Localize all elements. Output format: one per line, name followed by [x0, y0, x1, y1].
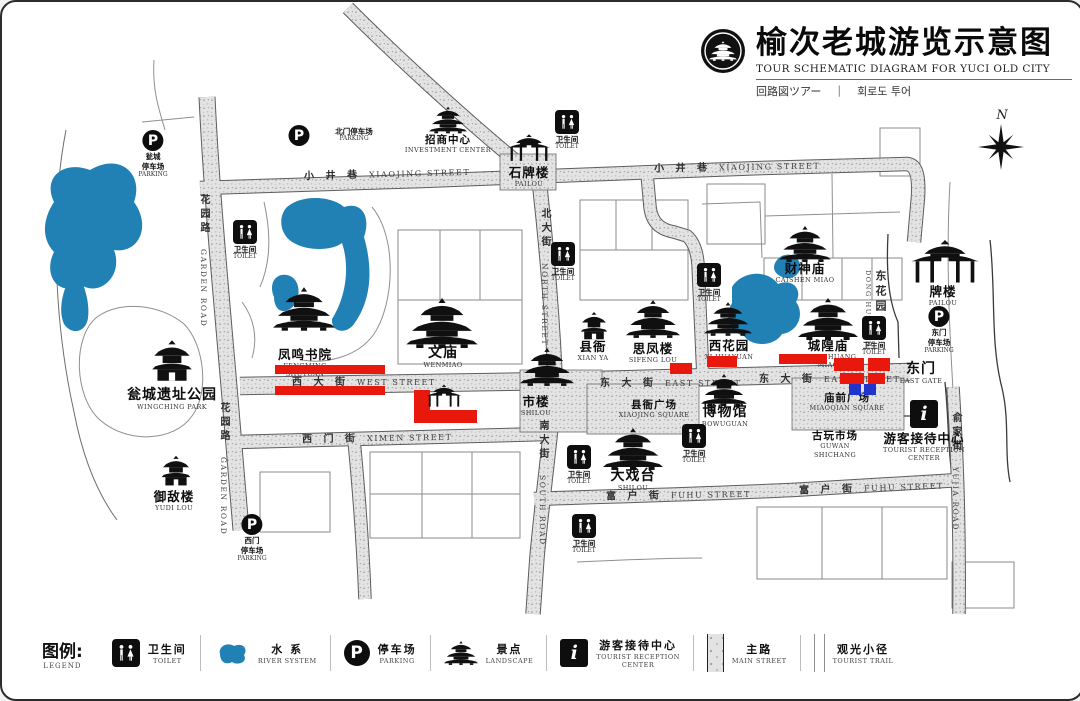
tour-map-canvas: 榆次老城游览示意图 TOUR SCHEMATIC DIAGRAM FOR YUC… [0, 0, 1080, 701]
site-label-wenmiao: 文庙 WENMIAO [423, 346, 462, 370]
legend-heading: 图例: LEGEND [42, 637, 83, 670]
street-label-yujia: 俞家街 YUJIA ROAD [946, 412, 965, 531]
toilet-badge-6: 卫生间TOILET [682, 424, 706, 465]
legend-item-parking: P 停车场 PARKING [331, 640, 430, 666]
xihuayuan-pavilion-icon [704, 300, 752, 338]
parking-icon: P [344, 640, 370, 666]
west-street-archway-icon [425, 382, 463, 410]
street-label-garden-south: 花园路 GARDEN ROAD [214, 402, 233, 535]
parking-ximen: P 西门 停车场 PARKING [237, 514, 266, 563]
main-street-swatch-icon [707, 634, 724, 672]
toilet-icon [233, 220, 257, 244]
site-label-chenghuangmiao: 城隍庙 CHENGHUANG MIAO [800, 339, 857, 369]
shilou-tower-icon [520, 336, 574, 398]
toilet-badge-5: 卫生间TOILET [862, 316, 886, 357]
site-label-reception: 游客接待中心 TOURIST RECEPTION CENTER [883, 432, 965, 462]
landscape-temple-icon [444, 640, 478, 666]
parking-icon: P [928, 306, 949, 327]
tourist-reception-badge: i [910, 400, 938, 428]
site-label-investment: 招商中心 INVESTMENT CENTER [405, 135, 491, 155]
daxitai-stage-icon [602, 428, 664, 470]
legend-item-reception: i 游客接待中心 TOURIST RECEPTION CENTER [547, 637, 693, 670]
chenghuangmiao-temple-icon [798, 298, 858, 340]
title-seal-icon [700, 28, 746, 74]
site-label-xianya-square: 县衙广场 XIAOJING SQUARE [619, 400, 690, 420]
title-divider: | [837, 84, 841, 97]
parking-icon: P [241, 514, 262, 535]
wingching-gate-icon [146, 338, 198, 384]
site-label-sifenglou: 思凤楼 SIFENG LOU [629, 342, 677, 364]
toilet-badge-7: 卫生间TOILET [567, 445, 591, 486]
parking-icon: P [289, 125, 310, 146]
compass-star-icon [977, 123, 1025, 171]
page-title-ja: 回路図ツアー [756, 83, 821, 99]
legend-item-water: 水 系 RIVER SYSTEM [201, 640, 330, 666]
compass: N [977, 108, 1027, 171]
site-label-xihuayuan: 西花园 XI HUAYUAN [705, 339, 754, 361]
toilet-icon [862, 316, 886, 340]
toilet-badge-4: 卫生间TOILET [697, 263, 721, 304]
toilet-badge-8: 卫生间TOILET [572, 514, 596, 555]
east-pailou-archway-icon [906, 240, 984, 284]
caishenmiao-temple-icon [774, 226, 836, 262]
page-title-en: TOUR SCHEMATIC DIAGRAM FOR YUCI OLD CITY [756, 63, 1072, 75]
site-label-miaoqian-square: 庙前广场 MIAOQIAN SQUARE [810, 393, 885, 413]
page-title-row3: 回路図ツアー | 회로도 투어 [756, 79, 1072, 99]
toilet-icon [567, 445, 591, 469]
toilet-badge-3: 卫生间TOILET [551, 242, 575, 283]
legend-item-landscape: 景点 LANDSCAPE [431, 640, 547, 666]
info-icon: i [560, 639, 588, 667]
fengming-temple-icon [273, 282, 335, 336]
xianya-hall-icon [574, 312, 614, 340]
parking-beimen-icon-wrap: P [289, 125, 310, 146]
toilet-icon [555, 110, 579, 134]
street-label-xiaojing-east: 小 井 巷 XIAOJING STREET [654, 157, 821, 175]
site-label-shilou: 市楼 SHILOU [521, 395, 551, 417]
toilet-icon [551, 242, 575, 266]
toilet-icon [112, 639, 140, 667]
toilet-badge-2: 卫生间TOILET [555, 110, 579, 151]
site-label-bowuguan: 博物馆 BOWUGUAN [702, 405, 748, 429]
yudilou-tower-icon [157, 454, 195, 488]
site-label-wingching: 瓮城遗址公园 WINGCHING PARK [127, 388, 217, 412]
site-label-guwan: 古玩市场 GUWAN SHICHANG [812, 431, 858, 459]
parking-beimen-label: 北门停车场 PARKING [335, 126, 373, 143]
investment-center-icon [429, 104, 467, 136]
site-label-shipailou: 石牌楼 PAILOU [509, 166, 550, 188]
compass-north-label: N [977, 108, 1027, 123]
street-label-east-2: 东 大 街 EAST STREET [759, 370, 900, 385]
page-title-ko: 회로도 투어 [857, 83, 911, 99]
title-block: 榆次老城游览示意图 TOUR SCHEMATIC DIAGRAM FOR YUC… [700, 28, 1072, 99]
toilet-icon [697, 263, 721, 287]
site-label-daxitai: 大戏台 SHILOU [611, 469, 656, 493]
tourist-trail-swatch-icon [814, 634, 825, 672]
water-icon [214, 640, 250, 666]
site-label-xianya: 县衙 XIAN YA [578, 340, 609, 362]
site-label-yudilou: 御敌楼 YUDI LOU [154, 490, 195, 512]
wenmiao-temple-icon [405, 298, 479, 348]
toilet-icon [572, 514, 596, 538]
parking-icon: P [142, 130, 163, 151]
info-icon: i [910, 400, 938, 428]
shipailou-archway-icon [506, 128, 552, 168]
parking-wengcheng: P 瓮城 停车场 PARKING [138, 130, 167, 179]
site-label-dongmen: 东门 EAST GATE [900, 362, 943, 386]
toilet-icon [682, 424, 706, 448]
sifenglou-tower-icon [626, 296, 680, 342]
site-label-east-pailou: 牌楼 PAILOU [929, 285, 958, 307]
street-label-ximen: 西 门 街 XIMEN STREET [302, 428, 453, 446]
legend-item-tourist-trail: 观光小径 TOURIST TRAIL [801, 634, 907, 672]
legend-item-toilet: 卫生间 TOILET [99, 639, 200, 667]
site-label-fengming: 凤鸣书院 FENGMING SHUYUAN [278, 348, 332, 378]
street-label-garden-north: 花园路 GARDEN ROAD [194, 194, 213, 327]
site-label-caishenmiao: 财神庙 CAISHEN MIAO [776, 262, 835, 284]
legend-item-main-street: 主路 MAIN STREET [694, 634, 800, 672]
water-west-lake [45, 163, 142, 288]
parking-dongmen: P 东门 停车场 PARKING [924, 306, 953, 355]
street-label-south: 南大街 SOUTH ROAD [533, 420, 552, 546]
page-title: 榆次老城游览示意图 [756, 28, 1072, 60]
legend-bar: 图例: LEGEND 卫生间 TOILET 水 系 RIVER SYSTEM [42, 634, 906, 672]
toilet-badge-1: 卫生间TOILET [233, 220, 257, 261]
bowuguan-museum-icon [688, 374, 760, 406]
